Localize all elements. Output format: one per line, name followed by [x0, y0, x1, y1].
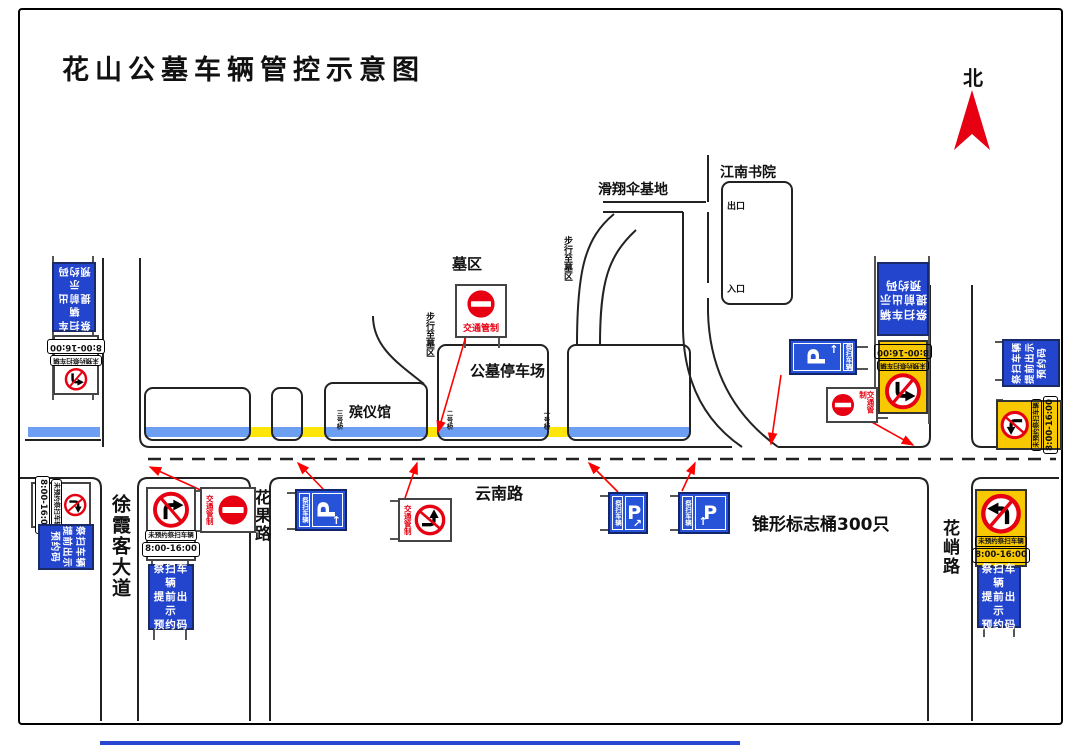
hours-tag: 8:00-16:00 — [1043, 396, 1058, 454]
parking-panel: P ↗ — [625, 496, 645, 530]
label-huaqiao-road: 花峭路 — [937, 519, 962, 576]
sign-line: 预约码 — [58, 263, 91, 277]
sign-line: 提前出示 — [60, 526, 73, 568]
sign-line: 提前出示 — [150, 590, 192, 618]
label-paragliding-base: 滑翔伞基地 — [598, 179, 668, 199]
sign-line: 祭扫车辆 — [879, 306, 927, 321]
diagram-page: 花山公墓车辆管控示意图 北 — [0, 0, 1080, 746]
parking-letter: P — [805, 348, 829, 366]
north-arrow-icon — [950, 88, 994, 156]
vehicles-strip: 祭扫车辆 — [843, 343, 854, 371]
traffic-control-text: 交通管制 — [463, 321, 499, 334]
parking-panel: P ↑ — [793, 343, 841, 371]
sign-line: 预约码 — [1037, 347, 1050, 379]
traffic-control-sign: 交通管制 — [398, 498, 452, 542]
no-reservation-tag: 未预约祭扫车辆 — [50, 355, 102, 367]
reservation-sign: 祭扫车辆 提前出示 预约码 — [148, 564, 194, 630]
traffic-control-text: 交通管制 — [206, 495, 214, 525]
hours-tag: 8:00-16:00 — [47, 339, 105, 354]
no-left-turn-icon — [1000, 408, 1030, 442]
reservation-sign: 祭扫车辆 提前出示 预约码 — [877, 262, 929, 336]
label-exit: 出口 — [727, 199, 745, 212]
hours-tag: 8:00-16:00 — [142, 542, 200, 557]
parking-arrow: ↑ — [332, 515, 341, 526]
no-left-turn-icon — [884, 373, 922, 411]
vehicles-strip: 祭扫车辆 — [682, 496, 693, 530]
traffic-control-text: 交通管制 — [859, 391, 874, 419]
parking-sign: 祭扫车辆 P ↑ — [678, 492, 730, 534]
no-reservation-tag: 未预约祭扫车辆 — [1031, 399, 1043, 451]
no-left-turn-sign: 未预约祭扫车辆 8:00-16:00 — [53, 335, 99, 395]
parking-sign: 祭扫车辆 P ↗ — [608, 492, 648, 534]
no-right-turn-sign: 未预约祭扫车辆 8:00-16:00 — [31, 482, 91, 528]
no-left-turn-sign-yellow: 未预约祭扫车辆 8:00-16:00 — [878, 340, 928, 414]
vehicles-strip: 祭扫车辆 — [299, 493, 310, 527]
parking-panel: P ↑ — [312, 493, 344, 527]
sign-line: 祭扫车辆 — [72, 526, 85, 568]
sign-line: 祭扫车辆 — [979, 562, 1019, 590]
traffic-control-text: 交通管制 — [404, 505, 412, 535]
no-entry-icon — [464, 288, 498, 320]
sign-line: 提前出示 — [879, 292, 927, 307]
parking-arrow: ↗ — [633, 518, 642, 529]
parking-arrow: ↑ — [699, 516, 708, 527]
reservation-sign: 祭扫车辆 提前出示 预约码 — [38, 524, 94, 570]
no-left-turn-sign-yellow: 未预约祭扫车辆 8:00-16:00 — [996, 400, 1062, 450]
hours-tag: 8:00-16:00 — [874, 344, 932, 359]
sign-line: 提前出示 — [979, 590, 1019, 618]
road-edges — [20, 155, 1059, 721]
river — [25, 427, 690, 440]
north-label: 北 — [963, 62, 983, 91]
no-left-turn-icon — [980, 493, 1022, 535]
sign-line: 预约码 — [885, 277, 921, 292]
sign-line: 预约码 — [154, 618, 189, 632]
label-yunnan-road: 云南路 — [471, 480, 527, 504]
no-reservation-tag: 未预约祭扫车辆 — [145, 530, 197, 542]
sign-line: 提前出示 — [54, 277, 94, 304]
traffic-control-sign: 交通管制 — [200, 487, 256, 533]
label-jiangnan-academy: 江南书院 — [720, 162, 776, 182]
no-reservation-tag: 未预约祭扫车辆 — [877, 360, 929, 372]
no-entry-icon — [830, 391, 856, 419]
parking-sign: 祭扫车辆 P ↑ — [295, 489, 347, 531]
no-left-turn-icon — [414, 504, 446, 536]
no-entry-icon — [216, 493, 250, 527]
sign-line: 祭扫车辆 — [150, 562, 192, 590]
label-parking-lot: 公墓停车场 — [470, 360, 545, 381]
sign-line: 祭扫车辆 — [54, 304, 94, 331]
bottom-blue-line — [100, 741, 740, 745]
no-right-turn-icon — [64, 490, 88, 520]
label-xuxiake-avenue: 徐霞客大道 — [107, 494, 134, 599]
no-right-turn-icon — [151, 491, 191, 529]
parking-panel: P ↑ — [695, 496, 727, 530]
parking-arrow: ↑ — [829, 344, 838, 355]
label-entrance: 入口 — [727, 282, 745, 295]
label-walkway-2: 步行至墓区 — [561, 236, 574, 281]
vehicles-strip: 祭扫车辆 — [612, 496, 623, 530]
no-right-turn-sign: 未预约祭扫车辆 8:00-16:00 — [146, 487, 196, 561]
label-walkway-1: 步行至墓区 — [423, 312, 436, 357]
page-title: 花山公墓车辆管控示意图 — [62, 48, 425, 87]
label-bridge-2: 二号桥 — [444, 410, 454, 430]
traffic-control-no-entry-sign: 交通管制 — [455, 284, 507, 338]
sign-line: 祭扫车辆 — [1012, 342, 1025, 384]
traffic-control-sign: 交通管制 — [826, 387, 878, 423]
label-bridge-3: 三号桥 — [334, 410, 344, 430]
sign-line: 预约码 — [47, 531, 60, 563]
reservation-sign: 祭扫车辆 提前出示 预约码 — [977, 566, 1021, 628]
label-traffic-cones: 锥形标志桶300只 — [752, 510, 890, 535]
no-left-turn-icon — [60, 368, 92, 392]
reservation-sign: 祭扫车辆 提前出示 预约码 — [52, 262, 96, 332]
label-cemetery-area: 墓区 — [452, 253, 482, 274]
label-funeral-home: 殡仪馆 — [349, 402, 391, 422]
no-reservation-tag: 未预约祭扫车辆 — [975, 536, 1027, 548]
parking-sign: 祭扫车辆 P ↑ — [789, 339, 857, 375]
reservation-sign: 祭扫车辆 提前出示 预约码 — [1002, 339, 1060, 387]
sign-line: 预约码 — [982, 618, 1017, 632]
label-bridge-1: 一号桥 — [541, 410, 551, 430]
sign-line: 提前出示 — [1025, 342, 1038, 384]
no-left-turn-sign-yellow: 未预约祭扫车辆 8:00-16:00 — [975, 489, 1027, 567]
